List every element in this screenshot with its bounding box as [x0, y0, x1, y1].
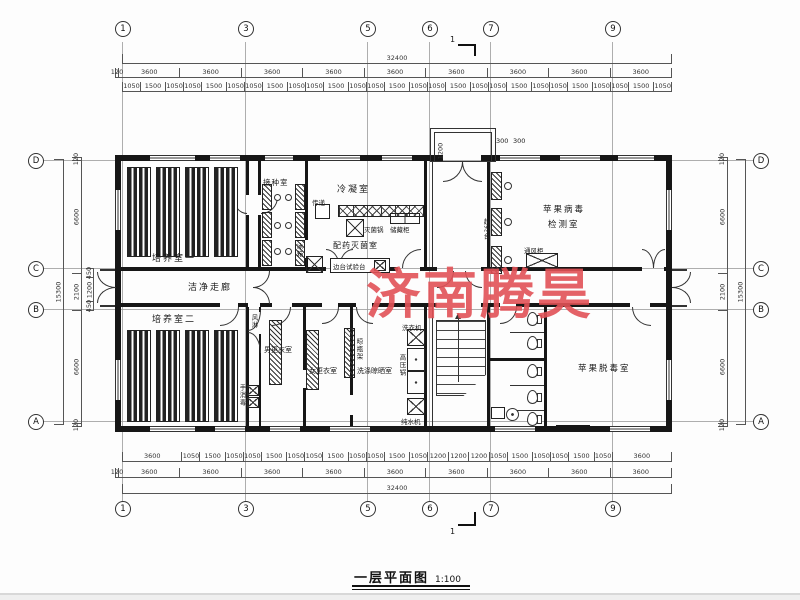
- drawing-scale: 1:100: [435, 575, 461, 585]
- room-label: 培养室二: [152, 312, 196, 325]
- culture-rack: [127, 167, 151, 257]
- grid-bubble: 7: [483, 21, 499, 37]
- grid-bubble: 3: [238, 21, 254, 37]
- locker: [306, 330, 319, 390]
- grid-line-col: [612, 42, 613, 502]
- grid-bubble: 3: [238, 501, 254, 517]
- equipment-label: 传递: [312, 197, 325, 207]
- window: [560, 155, 600, 161]
- drawing-title-text: 一层平面图: [354, 567, 429, 586]
- culture-rack: [214, 167, 238, 257]
- equipment-label: 晾瓶架: [354, 338, 364, 361]
- culture-rack: [127, 330, 151, 422]
- equipment-label: 纯水机: [401, 416, 421, 426]
- stool: [285, 194, 292, 201]
- room-label: 洁净走廊: [188, 280, 232, 293]
- water-purifier: [407, 398, 425, 415]
- room-label: 检测室: [548, 218, 580, 230]
- door-arc: [672, 272, 691, 288]
- sterilizer: [346, 219, 364, 237]
- toilet: [527, 390, 538, 404]
- room-label: 洗涤晾晒室: [357, 366, 392, 376]
- grid-bubble: 9: [605, 501, 621, 517]
- equipment-label: 边台试验台: [333, 261, 366, 271]
- door-arc: [322, 307, 339, 324]
- equipment-label: 灭菌锅: [364, 224, 384, 234]
- drawing-title: 一层平面图 1:100: [354, 567, 461, 586]
- grid-bubble: B: [28, 302, 44, 318]
- wall-stub: [100, 305, 115, 307]
- sill: [556, 425, 590, 432]
- dim-col-left-total: 15300: [54, 159, 64, 425]
- toilet: [527, 364, 538, 378]
- window: [382, 155, 412, 161]
- culture-rack: [185, 330, 209, 422]
- dim-row-top-fine: 1050150010501050150010501050150010501050…: [122, 82, 672, 92]
- equipment-label: 超净台: [481, 218, 491, 241]
- entrance-dim-b: 300: [513, 137, 525, 145]
- room-label: 苹果脱毒室: [578, 362, 631, 374]
- wall: [350, 415, 353, 426]
- wall: [115, 267, 326, 271]
- room-label: 接种室: [263, 177, 289, 188]
- door-arc: [220, 307, 239, 326]
- culture-rack: [185, 167, 209, 257]
- room-label: 女更衣室: [309, 366, 337, 376]
- door-arc: [97, 272, 116, 288]
- window: [150, 155, 195, 161]
- grid-bubble: D: [28, 153, 44, 169]
- grid-line-col: [122, 42, 123, 502]
- window: [618, 155, 654, 161]
- dim-col-right-total: 15300: [736, 159, 746, 425]
- dim-col-left-sub: 4501200450: [86, 268, 94, 311]
- door-arc: [97, 287, 116, 303]
- clean-bench: [491, 208, 502, 236]
- door-arc: [253, 287, 270, 304]
- room-label: 培养室一: [152, 251, 196, 264]
- stool: [274, 194, 281, 201]
- door-arc: [462, 162, 482, 182]
- window: [270, 426, 300, 432]
- mop-sink: [491, 407, 505, 419]
- stool: [274, 248, 281, 255]
- bench: [262, 240, 272, 266]
- window: [666, 360, 672, 400]
- section-mark-label: 1: [450, 527, 455, 536]
- window: [666, 190, 672, 230]
- dim-col-left: 120660021006600120: [72, 157, 82, 427]
- grid-bubble: 1: [115, 501, 131, 517]
- wall-stub: [672, 269, 687, 271]
- culture-rack: [156, 330, 180, 422]
- grid-bubble: 6: [422, 21, 438, 37]
- stool: [504, 218, 512, 226]
- window: [500, 155, 540, 161]
- room-label: 苹果病毒: [543, 203, 585, 215]
- toilet-partition: [510, 332, 544, 333]
- toilet: [527, 412, 538, 426]
- staircase: [436, 320, 486, 396]
- window: [610, 426, 650, 432]
- bench: [295, 212, 305, 238]
- grid-bubble: A: [753, 414, 769, 430]
- window: [150, 426, 195, 432]
- culture-rack: [156, 167, 180, 257]
- window: [495, 426, 535, 432]
- wall: [246, 161, 249, 195]
- room-label: 冷凝室: [337, 182, 370, 195]
- door-arc: [632, 307, 651, 326]
- equipment-label: 高压锅: [397, 354, 407, 377]
- culture-rack: [214, 330, 238, 422]
- window: [320, 155, 360, 161]
- window: [210, 155, 240, 161]
- grid-bubble: 6: [422, 501, 438, 517]
- section-mark-line: [474, 44, 476, 56]
- wall: [292, 303, 322, 307]
- autoclave: [407, 371, 425, 394]
- grid-bubble: 5: [360, 21, 376, 37]
- window: [330, 426, 370, 432]
- door-arc: [253, 271, 270, 288]
- wall: [338, 303, 356, 307]
- grid-bubble: D: [753, 153, 769, 169]
- grid-bubble: 7: [483, 501, 499, 517]
- storage-cabinet: [390, 213, 420, 224]
- floor-drain: [506, 408, 519, 421]
- equipment-label: 储藏柜: [390, 224, 410, 234]
- wall: [303, 388, 306, 426]
- dim-col-right: 120660021006600120: [718, 157, 728, 427]
- equipment-label: 风淋: [249, 314, 259, 329]
- section-mark-line: [474, 512, 476, 524]
- clean-bench: [491, 172, 502, 200]
- window: [265, 155, 293, 161]
- stool: [504, 182, 512, 190]
- bench: [262, 212, 272, 238]
- grid-bubble: B: [753, 302, 769, 318]
- dim-row-top-spans: 120360036003600360036003600360036003600: [115, 68, 672, 78]
- fridge: [306, 256, 323, 273]
- section-mark-label: 1: [450, 35, 455, 44]
- stool: [285, 248, 292, 255]
- entrance-dim-a: 300: [496, 137, 508, 145]
- wall: [487, 358, 547, 361]
- door-arc: [672, 287, 691, 303]
- window: [215, 426, 245, 432]
- title-rule: [352, 589, 470, 590]
- watermark: 济南腾昊: [366, 250, 594, 329]
- equipment-label: 手消毒: [237, 384, 247, 407]
- window: [115, 360, 121, 400]
- grid-line-col: [245, 42, 246, 502]
- dim-row-bottom-total: 32400: [122, 484, 672, 494]
- grid-bubble: 1: [115, 21, 131, 37]
- wall-stub: [672, 305, 687, 307]
- wall-stub: [100, 269, 115, 271]
- hand-sanitizer-box: [247, 385, 259, 396]
- wall: [258, 215, 261, 267]
- bench: [295, 184, 305, 210]
- dim-row-bottom-spans: 120360036003600360036003600360036003600: [115, 468, 672, 478]
- grid-bubble: A: [28, 414, 44, 430]
- page-edge: [0, 595, 800, 600]
- grid-bubble: C: [28, 261, 44, 277]
- room-label: 男更衣室: [264, 345, 292, 355]
- grid-bubble: C: [753, 261, 769, 277]
- entrance-dim-depth: 1200: [432, 138, 449, 157]
- door-arc: [443, 162, 463, 182]
- wall: [650, 303, 672, 307]
- toilet-partition: [510, 385, 544, 386]
- wall: [305, 161, 308, 240]
- equipment-label: 冰箱: [294, 243, 304, 258]
- autoclave: [407, 348, 425, 371]
- toilet: [527, 336, 538, 350]
- grid-bubble: 9: [605, 21, 621, 37]
- wall: [115, 303, 220, 307]
- hand-sanitizer-box: [247, 397, 259, 408]
- wall: [664, 267, 672, 271]
- floor-plan-page: 1 3 5 6 7 9 1 3 5 6 7 9 D C B A D C B A …: [0, 0, 800, 600]
- stool: [274, 222, 281, 229]
- dim-row-bottom-fine: 3600105015001050105015001050105015001050…: [122, 452, 672, 462]
- stool: [285, 222, 292, 229]
- wall: [246, 215, 249, 267]
- grid-bubble: 5: [360, 501, 376, 517]
- wall: [258, 161, 261, 195]
- window: [115, 190, 121, 230]
- door-arc: [653, 249, 665, 268]
- dim-row-top-total: 32400: [122, 54, 672, 64]
- section-mark-line: [458, 524, 476, 526]
